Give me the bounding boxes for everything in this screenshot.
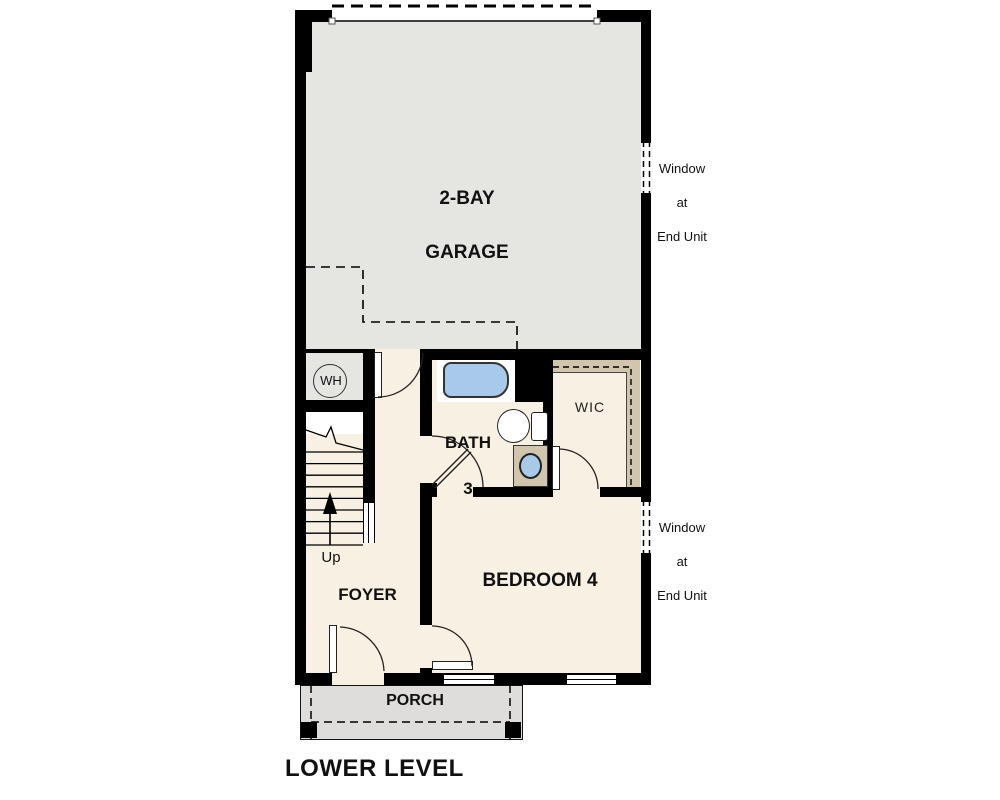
wic-door-leaf (552, 446, 560, 490)
garage-door-opening (332, 10, 597, 22)
left-wall (295, 10, 306, 685)
window-annotation-bottom-line1: Window (650, 519, 714, 536)
floorplan-lower-level: WH (0, 0, 1000, 800)
garage-foyer-door-opening (375, 349, 424, 360)
water-heater-label: WH (314, 373, 348, 388)
front-window-right-line (567, 679, 616, 680)
sink (519, 453, 542, 479)
front-window-left (443, 674, 495, 685)
front-door-opening (332, 673, 384, 685)
window-annotation-top-line2: at (650, 194, 714, 211)
bath-plumbing-wall-block (515, 355, 553, 402)
toilet-tank (531, 412, 548, 441)
wic-bedroom-wall (600, 487, 641, 497)
porch-post-left (301, 722, 317, 738)
foyer-right-wall-upper (420, 349, 432, 436)
stair-cased-opening (363, 503, 375, 543)
porch-label: PORCH (370, 692, 460, 710)
wh-closet-opening (306, 351, 363, 360)
window-annotation-bottom-line2: at (650, 553, 714, 570)
front-window-left-line (444, 679, 494, 680)
water-heater-circle: WH (313, 364, 347, 398)
bath-label-line1: BATH (433, 431, 503, 454)
porch-post-right (505, 722, 521, 738)
bedroom-door-leaf (432, 661, 473, 670)
window-annotation-bottom-line3: End Unit (650, 587, 714, 604)
window-annotation-top-line3: End Unit (650, 228, 714, 245)
garage-label-line2: GARAGE (387, 239, 547, 266)
stair-cased-opening-line (368, 503, 370, 543)
stairs-upper-white (306, 412, 363, 434)
garage-foyer-door-leaf (374, 352, 382, 398)
bathtub (443, 362, 509, 398)
wic-floor (553, 372, 627, 490)
window-annotation-bottom: Window at End Unit (650, 502, 714, 621)
bath-label-line2: 3 (433, 477, 503, 500)
stair-right-wall (363, 412, 375, 503)
wh-closet-bottom-wall (295, 400, 375, 412)
foyer-label: FOYER (320, 585, 415, 605)
left-wall-jog (295, 10, 312, 72)
bedroom-label: BEDROOM 4 (460, 570, 620, 592)
page-title: LOWER LEVEL (285, 755, 505, 783)
bath-label: BATH 3 (433, 408, 503, 523)
up-label: Up (314, 549, 348, 566)
garage-label-line1: 2-BAY (387, 185, 547, 212)
foyer-right-wall-mid (420, 483, 432, 625)
window-annotation-top: Window at End Unit (650, 143, 714, 262)
front-door-leaf (329, 625, 337, 673)
front-window-right (566, 674, 617, 685)
wic-label: WIC (560, 399, 620, 415)
garage-label: 2-BAY GARAGE (387, 158, 547, 293)
window-annotation-top-line1: Window (650, 160, 714, 177)
